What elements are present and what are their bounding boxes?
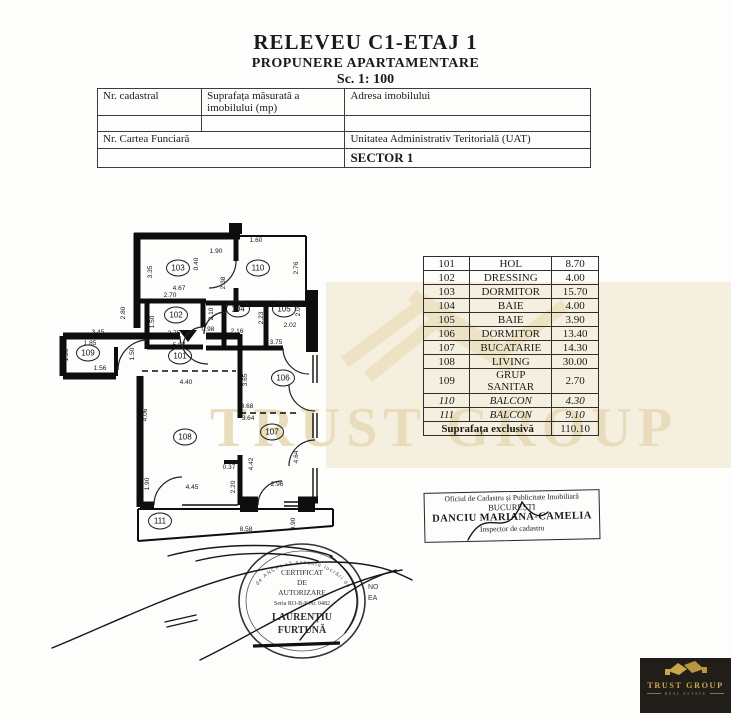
- table-row: 104BAIE4.00: [424, 299, 599, 313]
- room-name: DORMITOR: [470, 327, 552, 341]
- room-id: 111: [424, 408, 470, 422]
- dim-label: 2.05: [296, 304, 303, 317]
- svg-text:de ANCPI să execute lucrări de: de ANCPI să execute lucrări de: [255, 560, 352, 590]
- cell-empty: [202, 116, 345, 132]
- dim-label: 2.20: [231, 481, 238, 494]
- dim-label: 3.68: [241, 404, 254, 411]
- room-areas-table: 101HOL8.70 102DRESSING4.00 103DORMITOR15…: [423, 256, 599, 436]
- cell-uat: Unitatea Administrativ Teritorială (UAT): [345, 132, 591, 149]
- room-area: 4.30: [552, 394, 599, 408]
- table-row: 106DORMITOR13.40: [424, 327, 599, 341]
- room-id: 106: [424, 327, 470, 341]
- dim-label: 2.38: [221, 277, 228, 290]
- stamp-fragment-1: NO: [368, 584, 379, 591]
- cadastral-info-table: Nr. cadastral Suprafața măsurată a imobi…: [97, 88, 591, 168]
- room-circle-108: 108: [173, 429, 197, 446]
- room-id: 102: [424, 271, 470, 285]
- logo-line-right: [710, 693, 724, 694]
- table-row: 101HOL8.70: [424, 257, 599, 271]
- dim-label: 1.50: [150, 316, 157, 329]
- total-value: 110.10: [552, 422, 599, 436]
- dim-label: 1.50: [64, 349, 71, 362]
- room-id: 104: [424, 299, 470, 313]
- table-row: 110BALCON4.30: [424, 394, 599, 408]
- room-name: BAIE: [470, 299, 552, 313]
- table-row: 109GRUP SANITAR2.70: [424, 369, 599, 394]
- dim-label: 2.76: [294, 262, 301, 275]
- total-label: Suprafața exclusivă: [424, 422, 552, 436]
- table-row: 103DORMITOR15.70: [424, 285, 599, 299]
- table-row: 105BAIE3.90: [424, 313, 599, 327]
- room-id: 107: [424, 341, 470, 355]
- dim-label: 1.60: [250, 238, 263, 245]
- trust-group-logo: TRUST GROUP REAL ESTATE: [640, 658, 731, 713]
- total-row: Suprafața exclusivă110.10: [424, 422, 599, 436]
- stamp-fragment-2: EA: [368, 595, 378, 602]
- logo-line-left: [647, 693, 661, 694]
- cert-name-first: LAURENȚIU: [272, 612, 332, 623]
- dim-label: 1.90: [145, 478, 152, 491]
- dim-label: 3.64: [242, 416, 255, 423]
- dim-label: 1.50: [130, 348, 137, 361]
- cell-adresa: Adresa imobilului: [345, 89, 591, 116]
- room-id: 108: [424, 355, 470, 369]
- room-circle-102: 102: [164, 307, 188, 324]
- room-area: 14.30: [552, 341, 599, 355]
- room-area: 2.70: [552, 369, 599, 394]
- room-circle-101: 101: [168, 348, 192, 365]
- room-area: 15.70: [552, 285, 599, 299]
- room-name: BUCATARIE: [470, 341, 552, 355]
- room-name: BAIE: [470, 313, 552, 327]
- document-page: TRUST GROUP RELEVEU C1-ETAJ 1 PROPUNERE …: [0, 0, 731, 720]
- room-circle-107: 107: [260, 424, 284, 441]
- stamp-underline: [253, 643, 340, 646]
- table-row: 102DRESSING4.00: [424, 271, 599, 285]
- room-name: HOL: [470, 257, 552, 271]
- table-row: 108LIVING30.00: [424, 355, 599, 369]
- room-circle-104: 104: [226, 301, 250, 318]
- cell-carte-funciara: Nr. Cartea Funciară: [98, 132, 345, 149]
- dim-label: 3.75: [270, 340, 283, 347]
- room-area: 3.90: [552, 313, 599, 327]
- dim-label: 4.06: [143, 409, 150, 422]
- table-row: 107BUCATARIE14.30: [424, 341, 599, 355]
- dim-label: 2.80: [121, 307, 128, 320]
- page-subtitle: PROPUNERE APARTAMENTARE: [0, 56, 731, 72]
- room-circle-106: 106: [271, 370, 295, 387]
- room-id: 109: [424, 369, 470, 394]
- dim-label: 4.64: [294, 451, 301, 464]
- room-area: 9.10: [552, 408, 599, 422]
- dim-label: 1.90: [210, 249, 223, 256]
- room-area: 13.40: [552, 327, 599, 341]
- room-name: DORMITOR: [470, 285, 552, 299]
- cert-name-last: FURTUNĂ: [278, 624, 327, 636]
- room-name: GRUP SANITAR: [470, 369, 552, 394]
- logo-subtitle: REAL ESTATE: [664, 691, 706, 696]
- table-row: 111BALCON9.10: [424, 408, 599, 422]
- room-circle-103: 103: [166, 260, 190, 277]
- room-circle-111: 111: [148, 513, 172, 530]
- dim-label: 0.40: [194, 258, 201, 271]
- dim-label: 2.70: [164, 293, 177, 300]
- round-cert-stamp: de ANCPI să execute lucrări de CERTIFICA…: [239, 544, 379, 658]
- dim-label: 0.90: [291, 518, 298, 531]
- dim-label: 2.02: [284, 323, 297, 330]
- dim-label: 2.75: [168, 331, 181, 338]
- scale-label: Sc. 1: 100: [0, 72, 731, 88]
- room-id: 101: [424, 257, 470, 271]
- room-id: 105: [424, 313, 470, 327]
- stamp-ring-text: de ANCPI să execute lucrări de: [255, 560, 352, 590]
- dim-label: 4.42: [249, 458, 256, 471]
- cell-nr-cadastral: Nr. cadastral: [98, 89, 202, 116]
- dim-label: 3.65: [243, 374, 250, 387]
- dim-label: 4.45: [186, 485, 199, 492]
- page-title: RELEVEU C1-ETAJ 1: [0, 30, 731, 55]
- room-area: 8.70: [552, 257, 599, 271]
- cert-series: Seria RO-B-F Nr. 0482: [274, 601, 330, 607]
- room-area: 4.00: [552, 299, 599, 313]
- cert-line-2: DE: [297, 578, 307, 587]
- dim-label: 0.98: [202, 327, 215, 334]
- cell-empty: [345, 116, 591, 132]
- dim-label: 4.40: [180, 380, 193, 387]
- cell-suprafata: Suprafața măsurată a imobilului (mp): [202, 89, 345, 116]
- cell-empty: [98, 116, 202, 132]
- walls: [63, 233, 333, 541]
- dim-label: 8.58: [240, 527, 253, 534]
- logo-name: TRUST GROUP: [647, 681, 723, 690]
- room-name: DRESSING: [470, 271, 552, 285]
- dim-label: 0.37: [223, 465, 236, 472]
- room-id: 110: [424, 394, 470, 408]
- dim-label: 3.45: [92, 330, 105, 337]
- room-id: 103: [424, 285, 470, 299]
- dim-label: 2.10: [209, 308, 216, 321]
- room-name: BALCON: [470, 408, 552, 422]
- handshake-icon: [664, 658, 708, 680]
- room-area: 4.00: [552, 271, 599, 285]
- room-circle-109: 109: [76, 345, 100, 362]
- entrance-marker: [179, 330, 197, 342]
- room-circle-105: 105: [272, 301, 296, 318]
- room-name: LIVING: [470, 355, 552, 369]
- cert-line-1: CERTIFICAT: [281, 568, 323, 577]
- dim-label: 1.56: [94, 366, 107, 373]
- dim-label: 3.35: [148, 266, 155, 279]
- dim-label: 2.23: [259, 312, 266, 325]
- cell-sector: SECTOR 1: [345, 149, 591, 168]
- dim-label: 2.16: [231, 329, 244, 336]
- dim-label: 2.96: [271, 482, 284, 489]
- room-area: 30.00: [552, 355, 599, 369]
- room-circle-110: 110: [246, 260, 270, 277]
- cadastru-office-stamp: Oficiul de Cadastru și Publicitate Imobi…: [423, 489, 600, 543]
- cell-empty: [98, 149, 345, 168]
- cert-line-3: AUTORIZARE: [278, 588, 326, 597]
- room-name: BALCON: [470, 394, 552, 408]
